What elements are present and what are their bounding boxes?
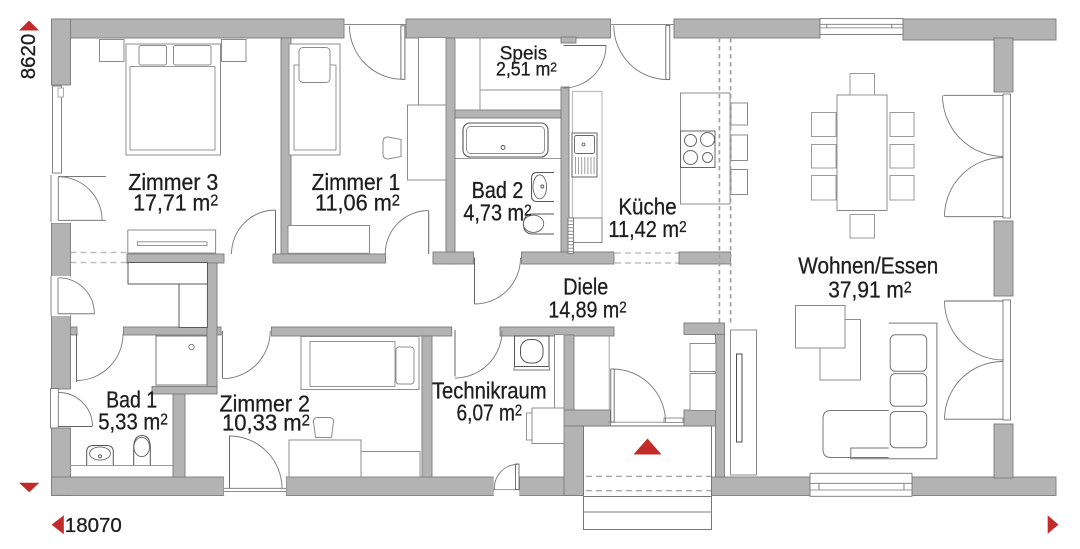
svg-text:37,91 m2: 37,91 m2 — [828, 277, 911, 303]
svg-text:18070: 18070 — [65, 514, 122, 537]
svg-text:6,07 m2: 6,07 m2 — [457, 400, 523, 426]
svg-text:8620: 8620 — [17, 34, 40, 80]
svg-text:11,06 m2: 11,06 m2 — [315, 190, 400, 216]
svg-text:17,71 m2: 17,71 m2 — [133, 190, 218, 216]
svg-text:2,51 m2: 2,51 m2 — [496, 59, 557, 80]
svg-text:Wohnen/Essen: Wohnen/Essen — [798, 253, 938, 279]
svg-text:5,33 m2: 5,33 m2 — [98, 409, 168, 435]
svg-text:14,89 m2: 14,89 m2 — [548, 297, 626, 323]
svg-text:11,42 m2: 11,42 m2 — [608, 216, 686, 242]
svg-text:4,73 m2: 4,73 m2 — [463, 200, 531, 226]
svg-text:10,33 m2: 10,33 m2 — [222, 410, 310, 436]
